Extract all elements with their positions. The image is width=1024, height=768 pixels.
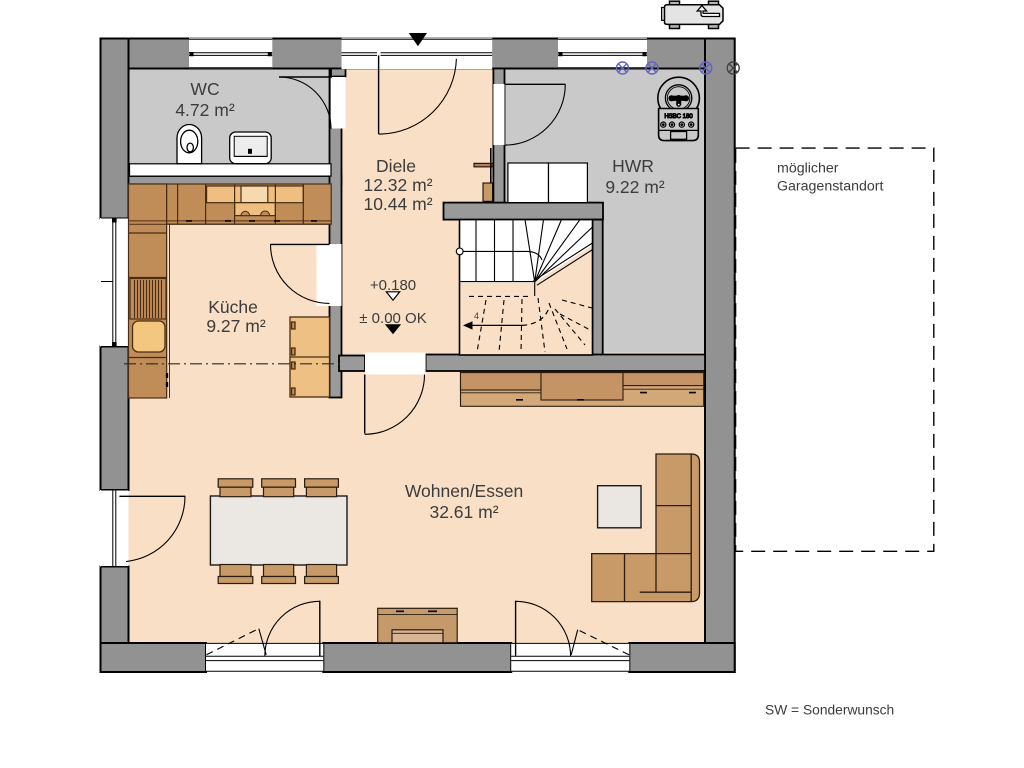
svg-text:Diele: Diele [376, 156, 416, 176]
svg-text:Küche: Küche [208, 297, 258, 317]
svg-text:12.32 m²: 12.32 m² [363, 175, 432, 195]
svg-text:möglicher: möglicher [777, 161, 839, 177]
svg-text:WC: WC [190, 79, 219, 99]
svg-text:10.44 m²: 10.44 m² [363, 194, 432, 214]
svg-text:9.27 m²: 9.27 m² [206, 316, 265, 336]
svg-text:4: 4 [474, 311, 479, 321]
svg-text:4.72 m²: 4.72 m² [175, 100, 234, 120]
svg-text:+0.180: +0.180 [370, 277, 416, 294]
svg-text:9.22 m²: 9.22 m² [605, 177, 664, 197]
svg-text:SW = Sonderwunsch: SW = Sonderwunsch [765, 703, 894, 718]
svg-text:± 0.00 OK: ± 0.00 OK [359, 310, 426, 327]
svg-text:32.61 m²: 32.61 m² [429, 502, 498, 522]
svg-text:HWR: HWR [612, 156, 654, 176]
svg-text:Wohnen/Essen: Wohnen/Essen [405, 481, 523, 501]
svg-text:HSBC 180: HSBC 180 [664, 114, 693, 120]
svg-text:Garagenstandort: Garagenstandort [777, 179, 884, 195]
